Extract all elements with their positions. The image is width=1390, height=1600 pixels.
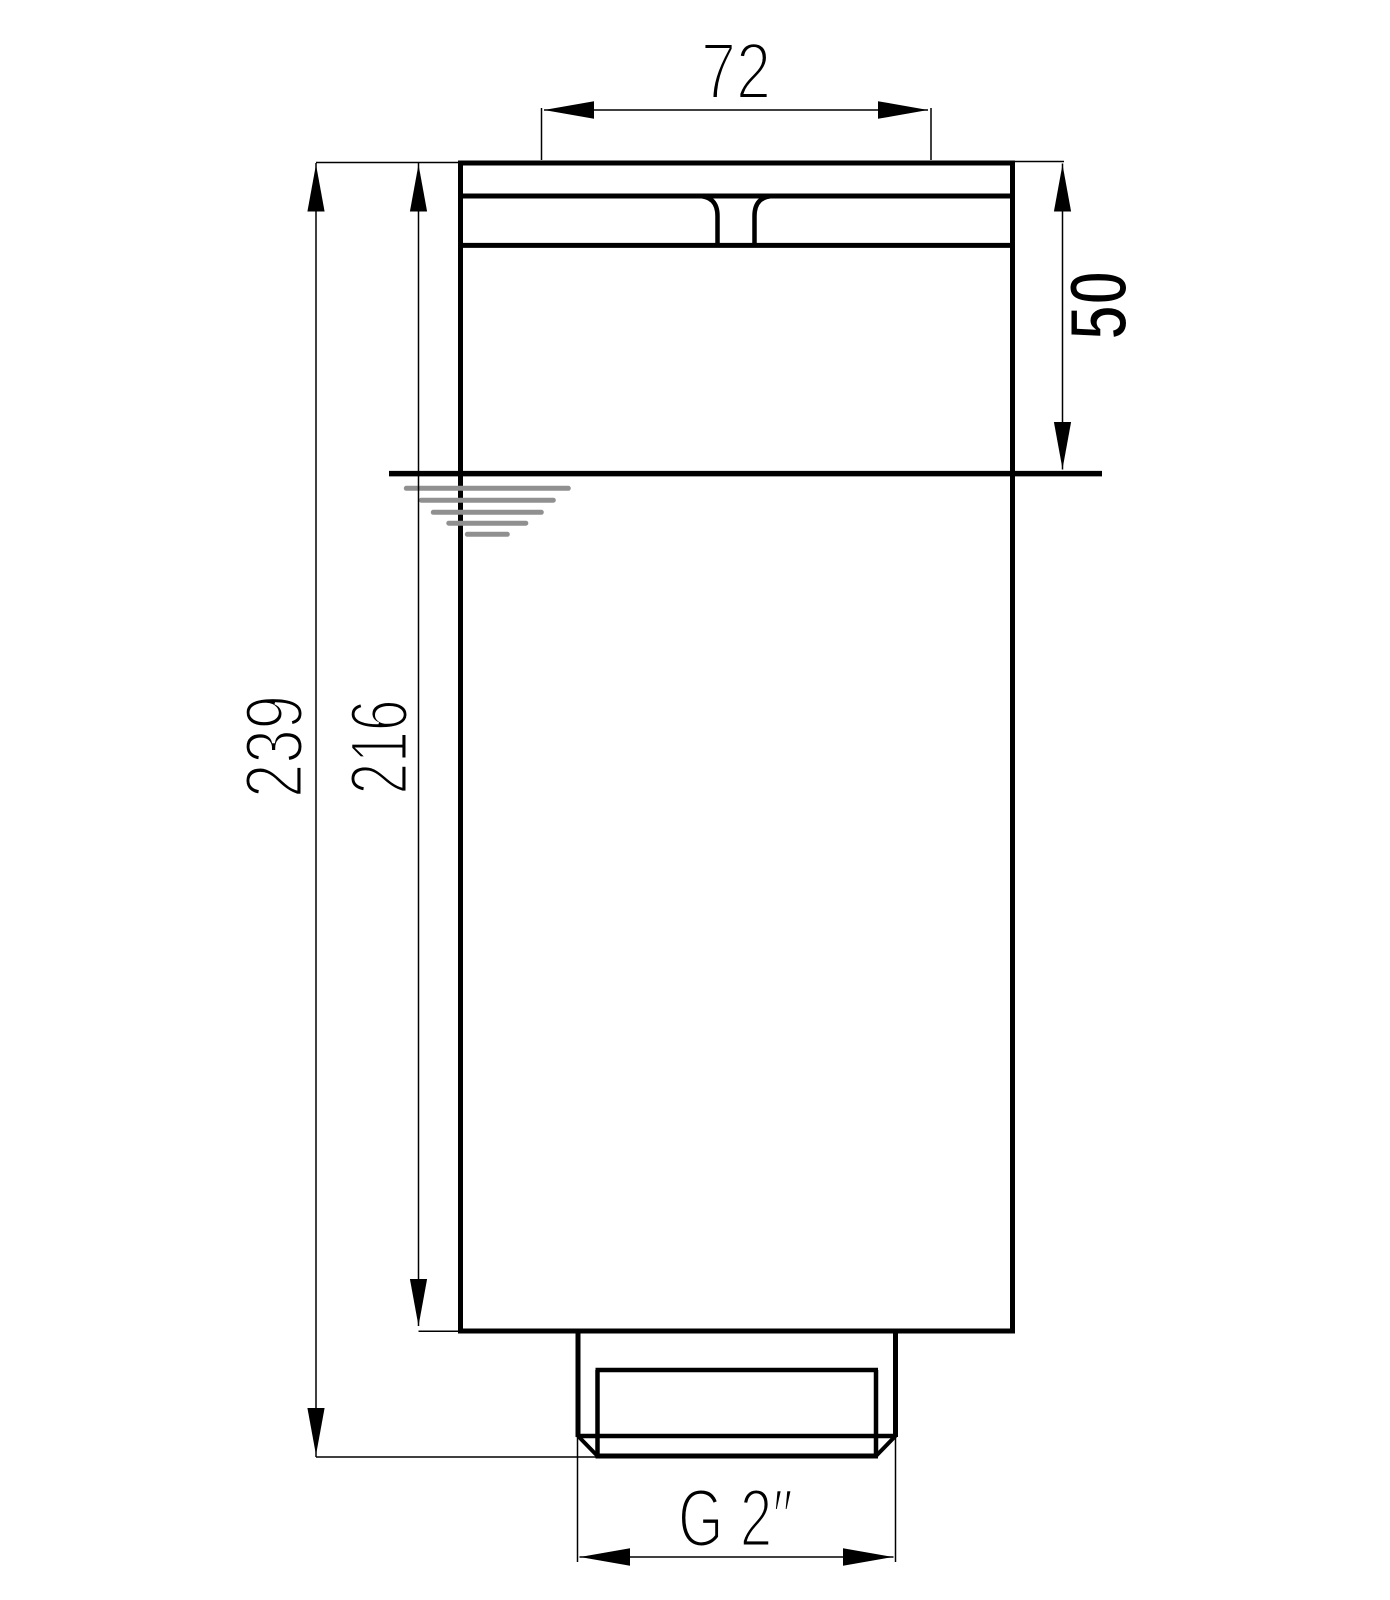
svg-text:239: 239	[229, 695, 320, 798]
svg-text:50: 50	[1052, 270, 1145, 340]
svg-text:G 2″: G 2″	[678, 1473, 793, 1564]
svg-text:72: 72	[701, 27, 771, 116]
svg-text:216: 216	[334, 700, 425, 795]
